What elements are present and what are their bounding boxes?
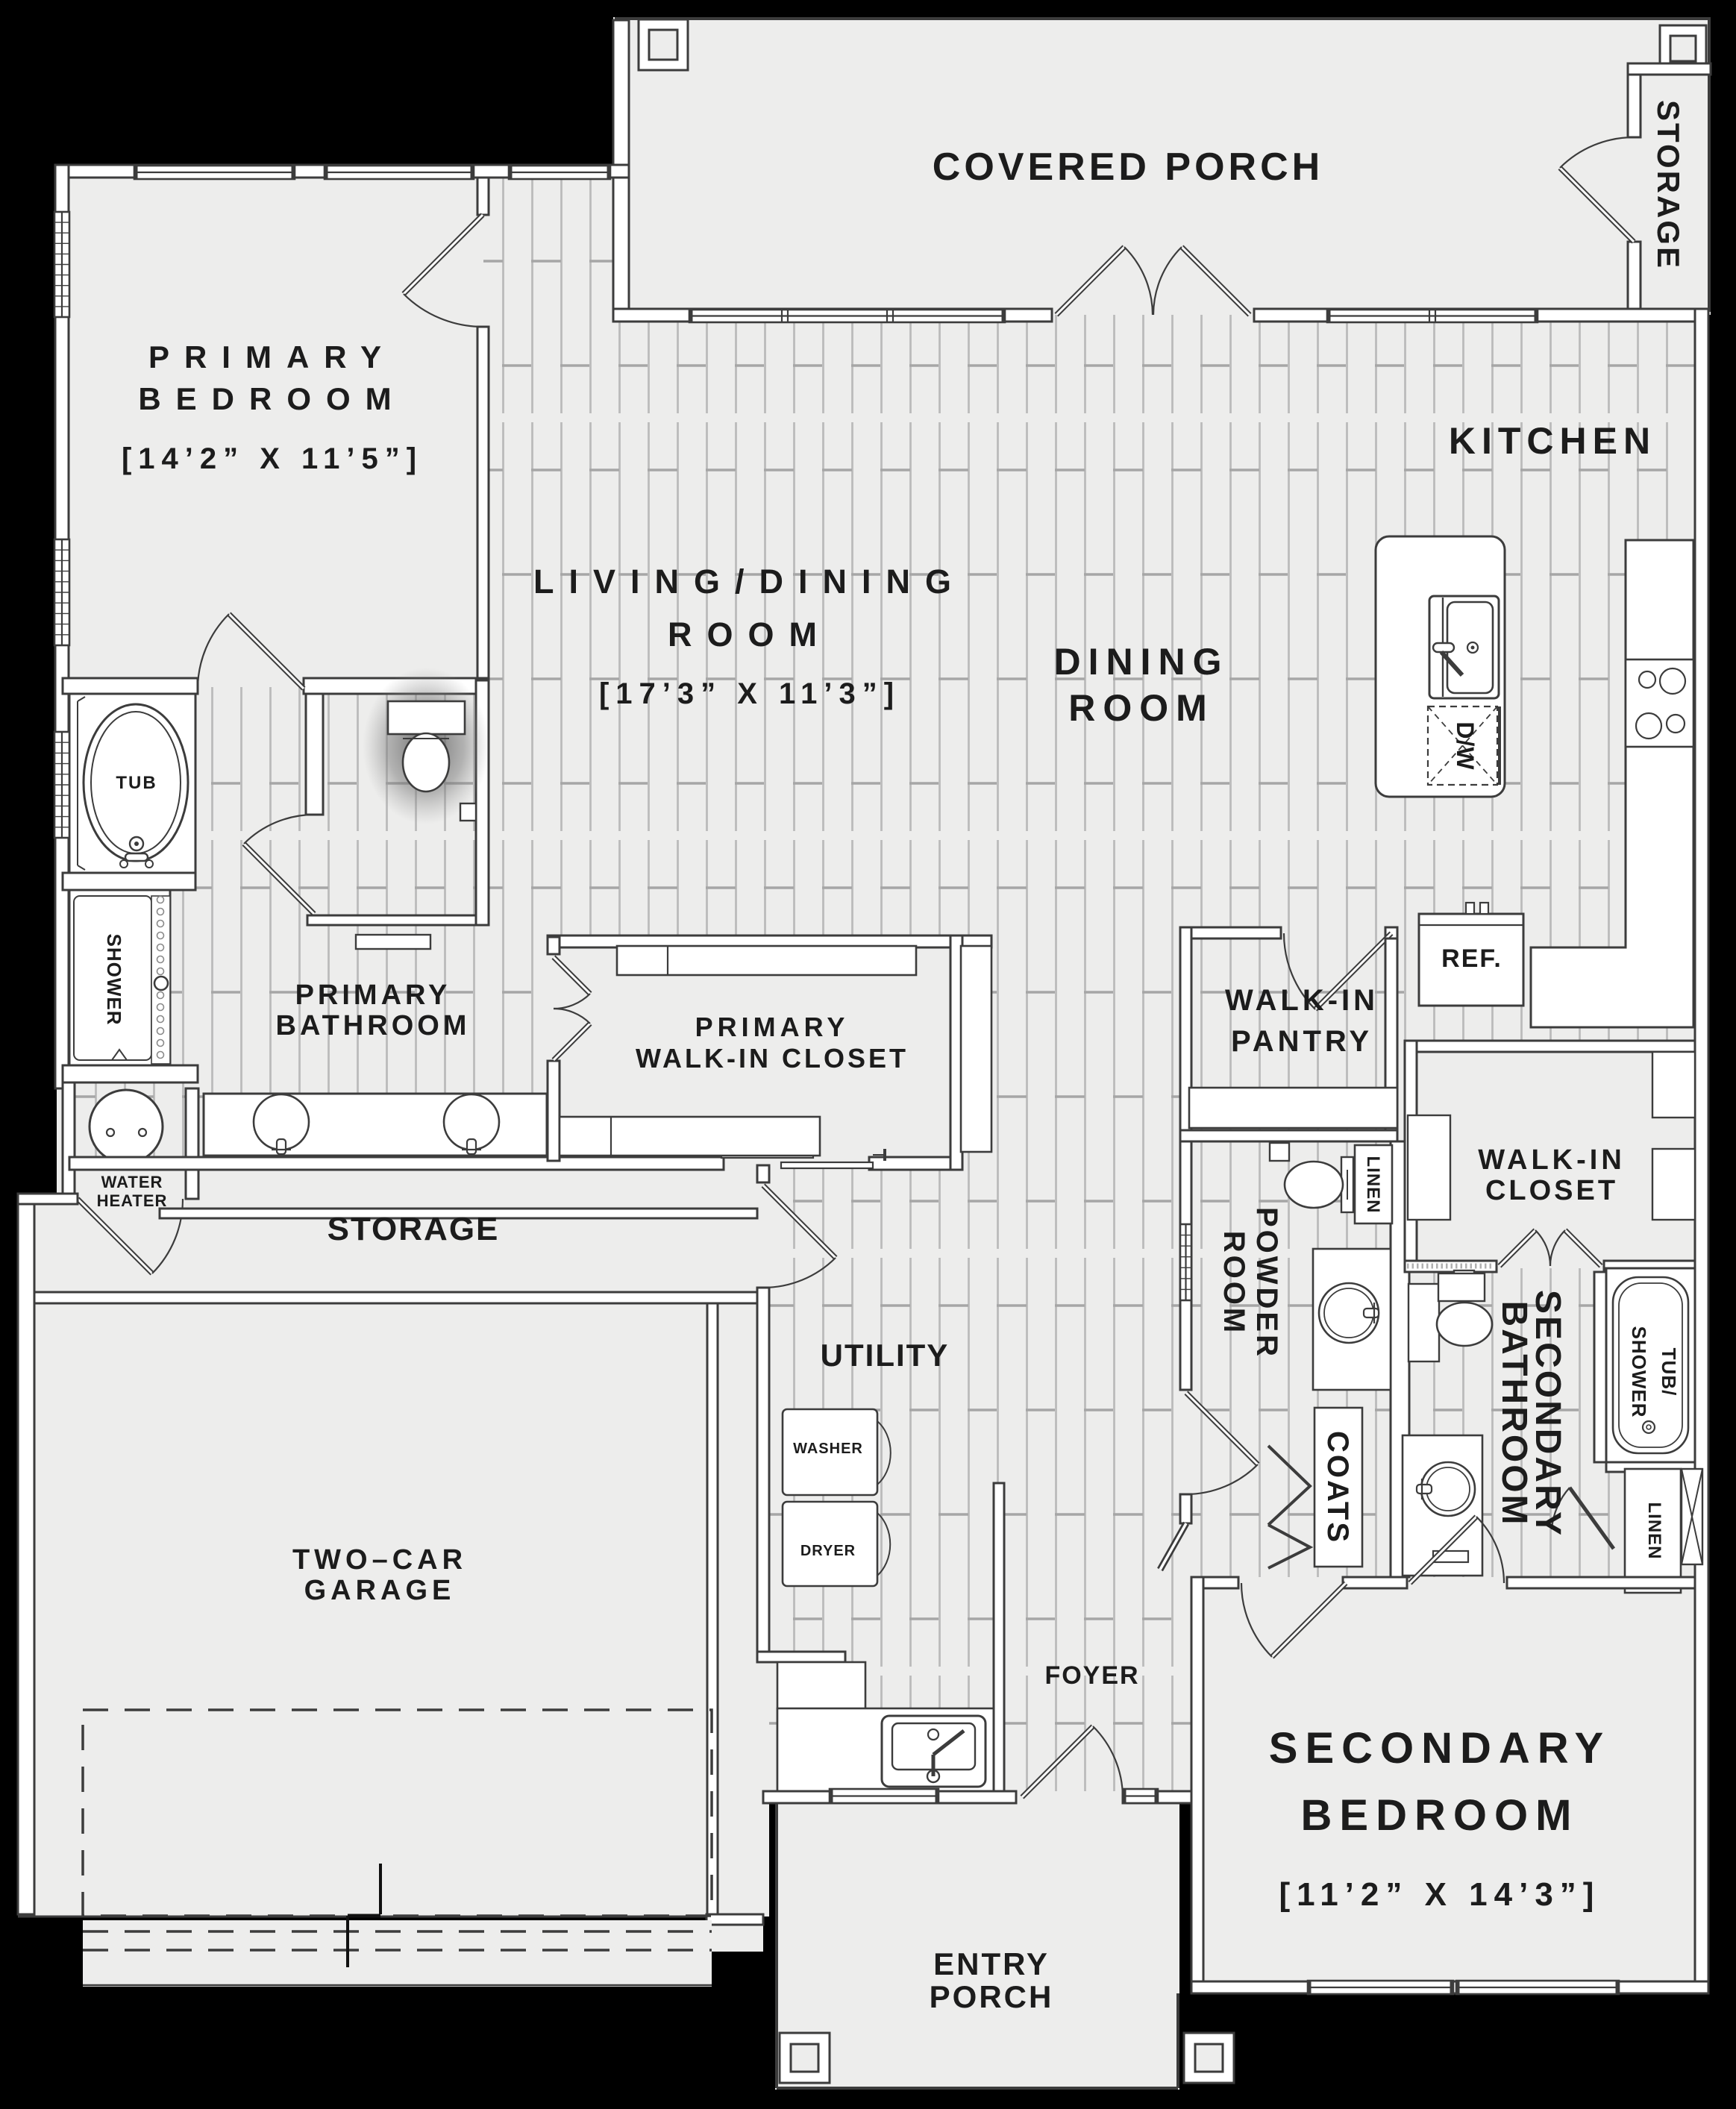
svg-text:SECONDARY: SECONDARY [1269, 1724, 1611, 1773]
svg-text:BEDROOM: BEDROOM [1301, 1791, 1579, 1840]
svg-text:FOYER: FOYER [1044, 1661, 1139, 1690]
svg-text:UTILITY: UTILITY [821, 1338, 950, 1373]
svg-text:WALK-IN CLOSET: WALK-IN CLOSET [636, 1043, 909, 1074]
svg-text:COATS: COATS [1321, 1431, 1354, 1544]
svg-text:D/W: D/W [1452, 721, 1479, 770]
svg-text:SHOWER: SHOWER [103, 934, 125, 1026]
svg-text:ROOM: ROOM [1218, 1231, 1250, 1335]
svg-text:PRIMARY: PRIMARY [295, 980, 451, 1011]
svg-text:STORAGE: STORAGE [328, 1211, 500, 1247]
svg-text:TWO–CAR: TWO–CAR [292, 1544, 467, 1576]
svg-text:LINEN: LINEN [1644, 1502, 1664, 1560]
svg-text:LINEN: LINEN [1363, 1156, 1383, 1214]
svg-text:BATHROOM: BATHROOM [1494, 1300, 1534, 1526]
svg-text:PRIMARY: PRIMARY [695, 1012, 850, 1042]
svg-text:PANTRY: PANTRY [1231, 1025, 1373, 1058]
svg-text:WATER: WATER [101, 1173, 163, 1191]
svg-text:PRIMARY: PRIMARY [148, 339, 396, 375]
svg-text:WALK-IN: WALK-IN [1478, 1144, 1626, 1176]
svg-text:TUB/: TUB/ [1658, 1348, 1680, 1397]
svg-text:ROOM: ROOM [668, 615, 832, 654]
svg-text:GARAGE: GARAGE [304, 1575, 456, 1606]
svg-text:STORAGE: STORAGE [1651, 100, 1686, 270]
svg-text:COVERED PORCH: COVERED PORCH [933, 145, 1323, 189]
svg-text:ROOM: ROOM [1068, 687, 1215, 729]
svg-text:ENTRY: ENTRY [933, 1946, 1050, 1981]
svg-text:KITCHEN: KITCHEN [1449, 420, 1656, 462]
svg-text:[11’2” X 14’3”]: [11’2” X 14’3”] [1279, 1876, 1601, 1913]
svg-text:TUB: TUB [116, 773, 157, 793]
svg-text:[17’3” X 11’3”]: [17’3” X 11’3”] [599, 677, 900, 710]
svg-text:DINING: DINING [1054, 641, 1229, 683]
svg-text:DRYER: DRYER [800, 1543, 856, 1559]
svg-text:WALK-IN: WALK-IN [1225, 984, 1379, 1017]
svg-text:POWDER: POWDER [1250, 1207, 1283, 1359]
svg-text:HEATER: HEATER [97, 1191, 168, 1210]
svg-text:BATHROOM: BATHROOM [276, 1010, 471, 1041]
svg-text:BEDROOM: BEDROOM [138, 381, 406, 416]
svg-text:WASHER: WASHER [793, 1441, 863, 1457]
svg-text:REF.: REF. [1441, 944, 1502, 973]
svg-text:PORCH: PORCH [930, 1979, 1054, 2014]
svg-text:CLOSET: CLOSET [1485, 1175, 1618, 1206]
svg-text:LIVING/DINING: LIVING/DINING [533, 562, 966, 601]
svg-text:SHOWER: SHOWER [1628, 1326, 1650, 1418]
svg-text:[14’2” X 11’5”]: [14’2” X 11’5”] [122, 442, 423, 475]
